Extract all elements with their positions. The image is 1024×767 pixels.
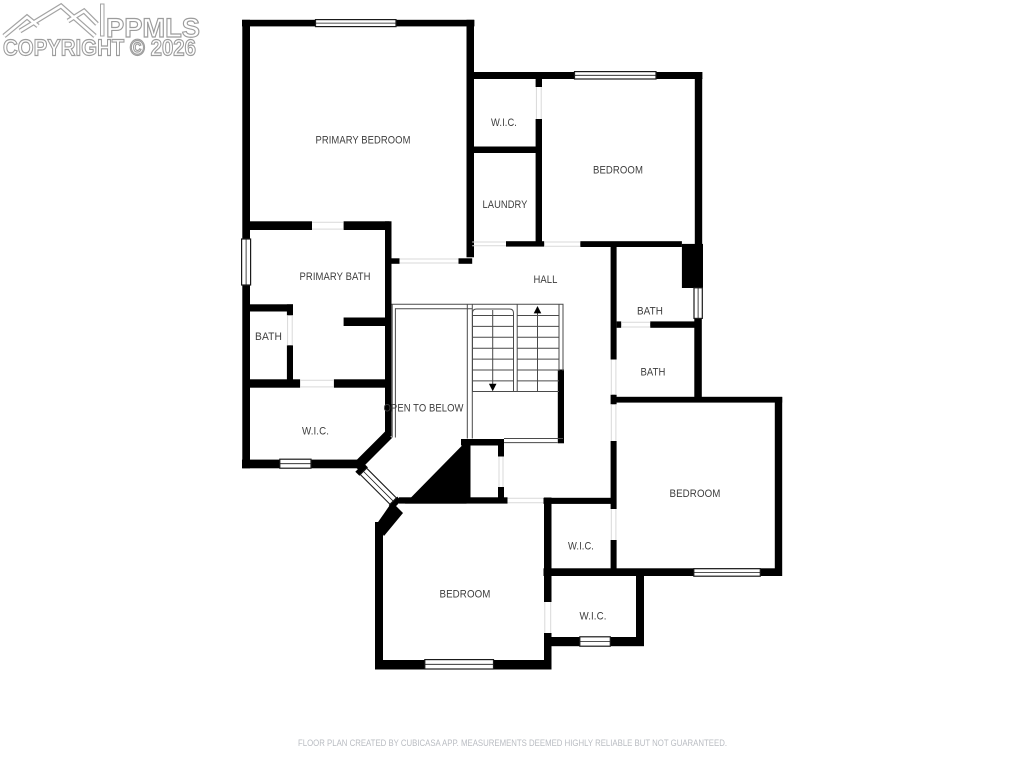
svg-text:COPYRIGHT © 2026: COPYRIGHT © 2026 — [3, 35, 196, 61]
svg-text:W.I.C.: W.I.C. — [491, 117, 517, 129]
svg-text:BEDROOM: BEDROOM — [440, 589, 491, 601]
svg-text:LAUNDRY: LAUNDRY — [483, 199, 528, 211]
svg-text:BATH: BATH — [641, 367, 666, 379]
svg-text:FLOOR PLAN CREATED BY CUBICASA: FLOOR PLAN CREATED BY CUBICASA APP. MEAS… — [298, 738, 727, 748]
svg-text:W.I.C.: W.I.C. — [568, 541, 594, 553]
svg-text:PRIMARY BATH: PRIMARY BATH — [300, 271, 371, 283]
svg-text:W.I.C.: W.I.C. — [580, 611, 607, 623]
svg-text:BATH: BATH — [255, 331, 282, 343]
svg-text:BEDROOM: BEDROOM — [670, 488, 721, 500]
svg-text:PRIMARY BEDROOM: PRIMARY BEDROOM — [316, 135, 411, 147]
svg-text:OPEN TO BELOW: OPEN TO BELOW — [384, 402, 464, 414]
svg-text:BEDROOM: BEDROOM — [593, 164, 643, 176]
svg-text:HALL: HALL — [534, 274, 558, 286]
svg-text:W.I.C.: W.I.C. — [302, 425, 329, 437]
svg-text:BATH: BATH — [637, 306, 663, 318]
